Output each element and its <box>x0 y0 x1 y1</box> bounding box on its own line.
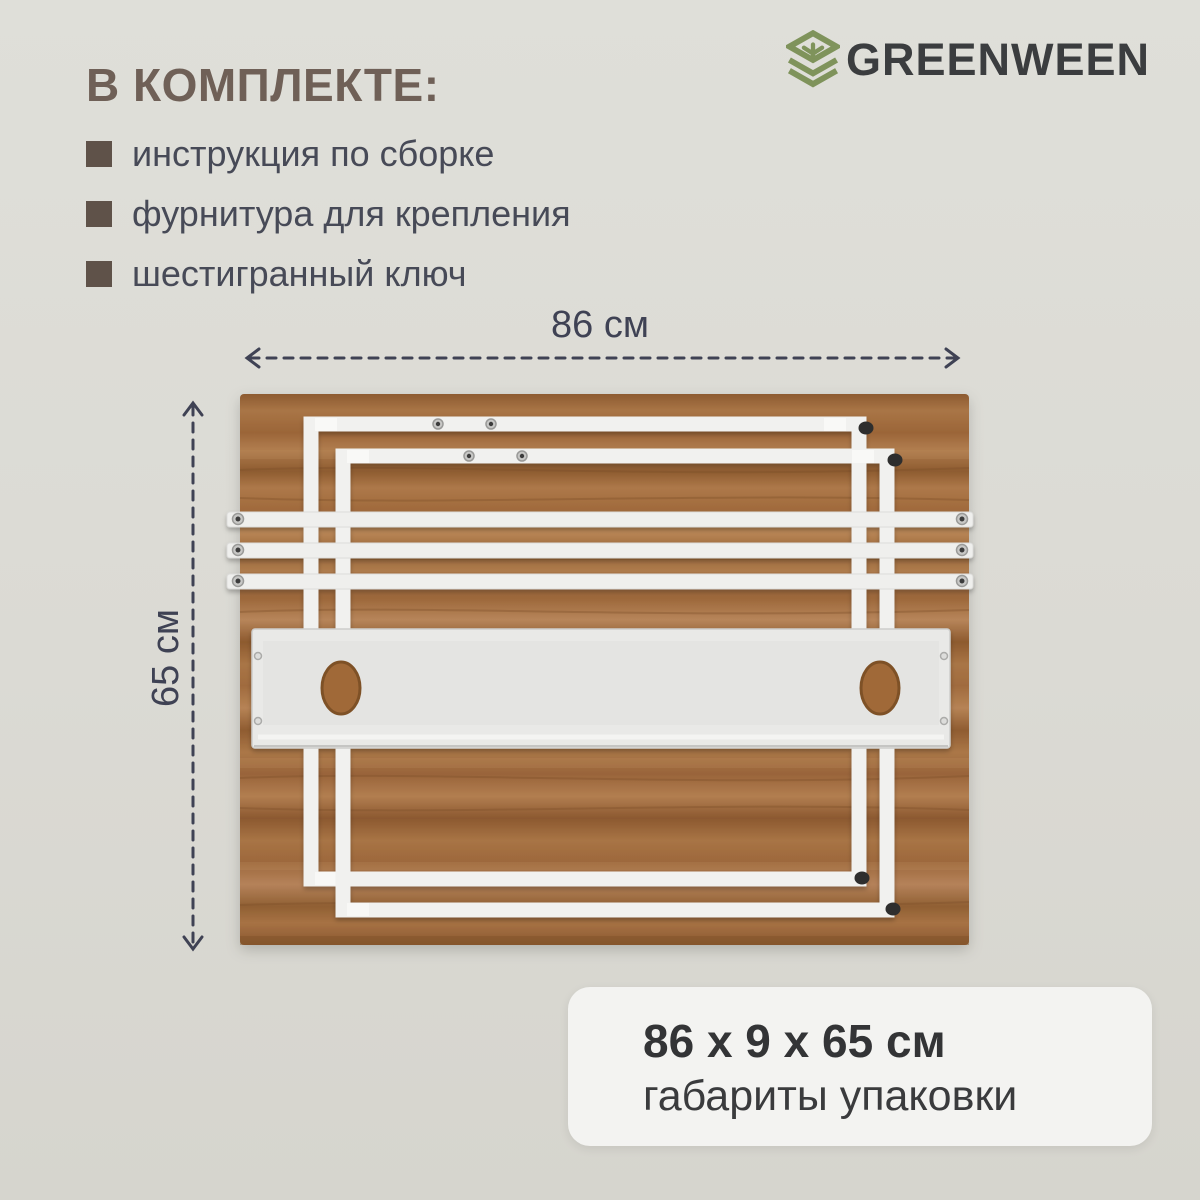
kit-list: инструкция по сборке фурнитура для крепл… <box>86 136 571 316</box>
bullet-square-icon <box>86 141 112 167</box>
box-sprout-icon <box>786 30 840 90</box>
kit-heading: В КОМПЛЕКТЕ: <box>86 58 440 112</box>
kit-item-label: инструкция по сборке <box>132 136 494 172</box>
kit-item-label: шестигранный ключ <box>132 256 467 292</box>
package-dimensions-value: 86 x 9 x 65 см <box>643 1015 1152 1067</box>
kit-item-label: фурнитура для крепления <box>132 196 571 232</box>
brand-name: GREENWEEN <box>846 34 1150 86</box>
package-dimensions-card: 86 x 9 x 65 см габариты упаковки <box>568 987 1152 1146</box>
dimension-height-label: 65 см <box>144 594 188 722</box>
package-dimensions-caption: габариты упаковки <box>643 1071 1152 1121</box>
kit-item: инструкция по сборке <box>86 136 571 172</box>
support-rails <box>227 512 973 589</box>
kit-item: шестигранный ключ <box>86 256 571 292</box>
kit-item: фурнитура для крепления <box>86 196 571 232</box>
bullet-square-icon <box>86 261 112 287</box>
dimension-arrow-horizontal <box>247 349 958 367</box>
bullet-square-icon <box>86 201 112 227</box>
dimension-width-label: 86 см <box>500 304 700 347</box>
product-infographic: { "page": { "background_top": "#DFDFD9",… <box>0 0 1200 1200</box>
brand-logo: GREENWEEN <box>786 30 1150 90</box>
center-beam <box>252 629 950 748</box>
